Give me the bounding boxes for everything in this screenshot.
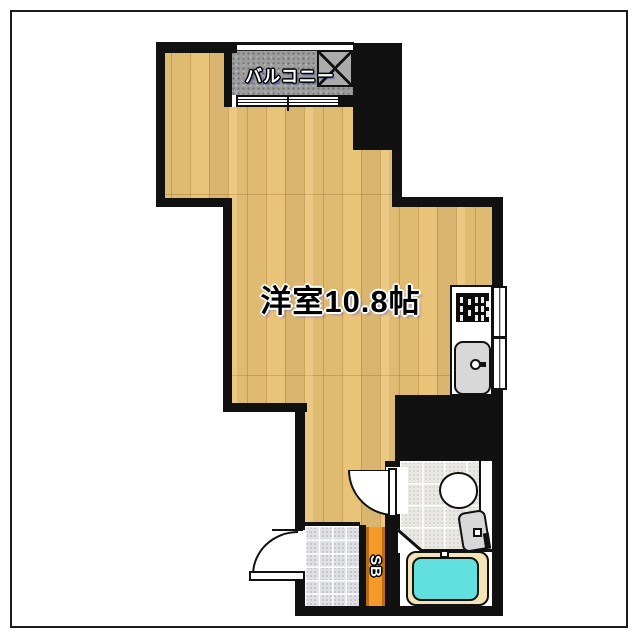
toilet-icon: [439, 472, 478, 509]
wall-block-top-right: [353, 43, 402, 150]
wall-left-mid: [223, 198, 232, 412]
kitchen-window: [492, 286, 507, 390]
stove-icon: [456, 293, 489, 322]
wall-right-upper: [392, 150, 402, 207]
wall-window-end: [338, 95, 354, 107]
wall-step-1: [156, 198, 232, 207]
wall-left-lower: [295, 403, 305, 616]
shoe-box: SB: [366, 527, 385, 606]
sliding-window-divider: [287, 95, 289, 111]
wall-block-mid-right: [395, 395, 503, 461]
bathtub-icon: [412, 557, 479, 601]
toilet-tank-button: [473, 528, 482, 537]
wall-genkan-divider: [359, 525, 366, 610]
wall-kitchen-top: [392, 197, 503, 207]
entrance-door-jamb: [272, 529, 303, 531]
floorplan-canvas: SB 洋室10.8帖 バルコニー: [0, 0, 640, 640]
entrance-door-leaf: [249, 571, 305, 581]
bathroom-door-leaf: [388, 468, 397, 517]
faucet-knob-icon: [480, 362, 486, 367]
balcony-label: バルコニー: [227, 62, 353, 87]
wall-left-upper: [156, 42, 165, 207]
bathtub-tap-icon: [440, 550, 449, 558]
shoe-box-label: SB: [367, 555, 384, 578]
entrance-tile-floor: [305, 526, 359, 606]
main-room-label: 洋室10.8帖: [238, 276, 443, 321]
